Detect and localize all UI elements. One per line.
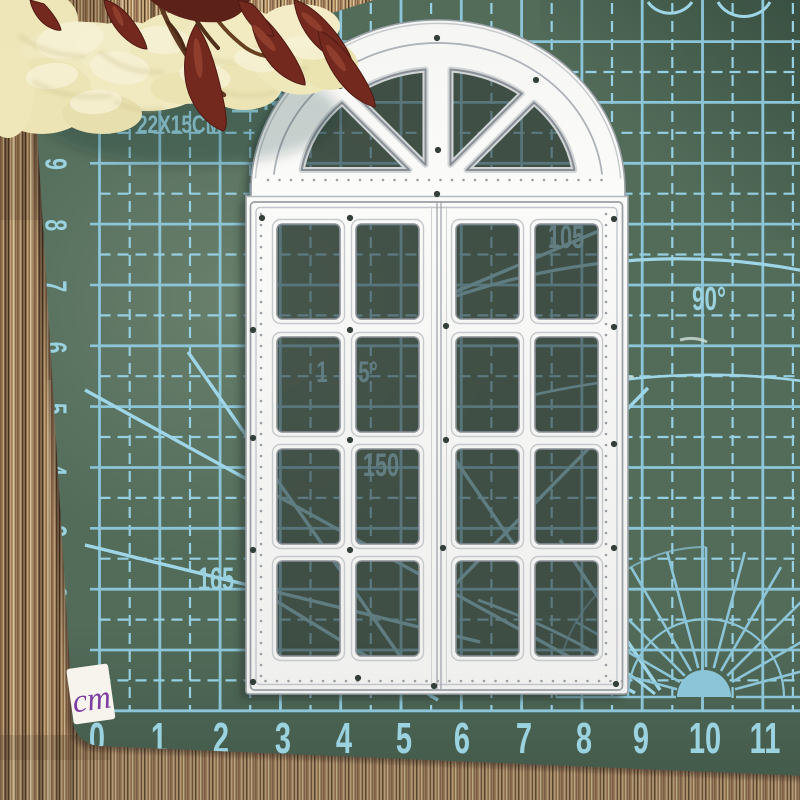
svg-text:10: 10	[689, 713, 721, 763]
svg-text:7: 7	[516, 713, 532, 763]
svg-text:5: 5	[396, 713, 412, 763]
svg-text:90°: 90°	[692, 280, 726, 317]
svg-text:165: 165	[198, 561, 234, 597]
svg-text:6: 6	[454, 713, 470, 763]
svg-text:8: 8	[38, 219, 73, 231]
svg-text:9: 9	[38, 158, 73, 170]
svg-text:9: 9	[633, 713, 649, 763]
svg-text:4: 4	[336, 713, 352, 763]
svg-text:8: 8	[576, 713, 592, 763]
svg-text:11: 11	[750, 713, 781, 763]
svg-text:cm: cm	[70, 679, 113, 720]
